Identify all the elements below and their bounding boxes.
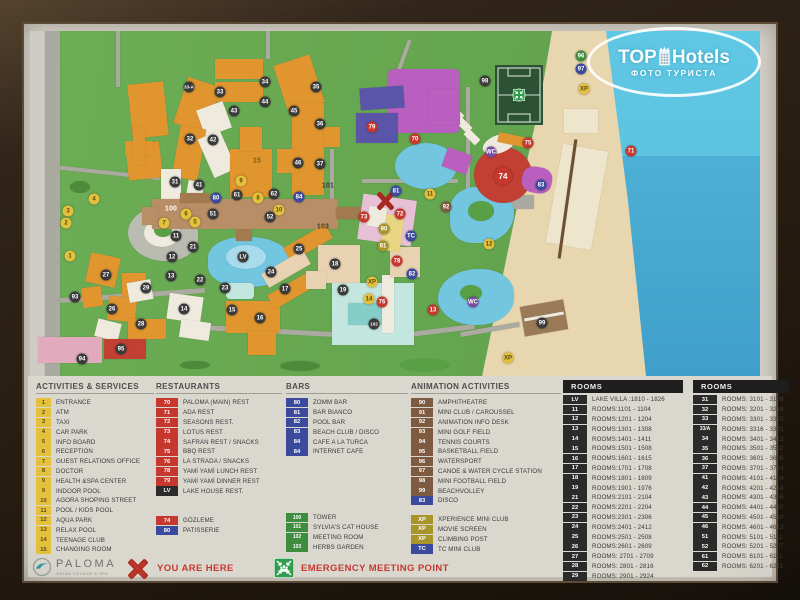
legend-badge: 16 <box>563 454 587 463</box>
legend-badge: 11 <box>36 506 51 515</box>
brand-subtitle: GRIDA VILLAGE & SPA <box>56 571 116 576</box>
legend-row: 98MINI FOOTBALL FIELD <box>411 476 561 486</box>
legend-badge: 18 <box>563 474 587 483</box>
legend-badge: 33 <box>693 415 717 424</box>
legend-row: 7GUEST RELATIONS OFFICE <box>36 457 154 467</box>
map-shape <box>128 319 166 339</box>
map-marker-96: 96 <box>576 51 587 62</box>
legend-row: 3TAXI <box>36 418 154 428</box>
legend-label: ROOMS:1801 - 1809 <box>592 475 652 482</box>
legend-row: 84INTERNET CAFE <box>286 447 408 457</box>
legend-row: 19ROOMS:1901 - 1976 <box>563 483 689 493</box>
map-marker-XP: XP <box>367 277 378 288</box>
map-marker-81: 81 <box>391 186 402 197</box>
map-marker-61: 61 <box>232 190 243 201</box>
map-marker-70: 70 <box>410 134 421 145</box>
map-marker-84: 84 <box>294 192 305 203</box>
legend-badge: 44 <box>693 503 717 512</box>
legend-label: WATERSPORT <box>438 458 482 465</box>
legend-label: HERBS GARDEN <box>313 544 364 551</box>
map-marker-4: 4 <box>89 194 100 205</box>
legend-label: MINI GOLF FIELD <box>438 429 490 436</box>
legend-label: ROOMS: 3301 - 3315 <box>722 416 784 423</box>
map-shape <box>266 31 270 59</box>
legend-label: SEASONS REST. <box>183 419 233 426</box>
tophotels-watermark: TOP Hotels ФОТО ТУРИСТА <box>586 27 762 97</box>
legend-label: GÖZLEME <box>183 517 214 524</box>
legend-badge: 13 <box>36 526 51 535</box>
watermark-hotels-text: Hotels <box>672 50 730 66</box>
map-marker-25: 25 <box>294 244 305 255</box>
map-marker-42: 42 <box>208 135 219 146</box>
legend-badge: 101 <box>286 523 308 532</box>
map-marker-19: 19 <box>338 285 349 296</box>
map-marker-5: 5 <box>190 217 201 228</box>
legend-badge: 74 <box>156 437 178 446</box>
sign-footer: PALOMA GRIDA VILLAGE & SPA YOU ARE HERE <box>24 555 584 583</box>
paloma-swirl-icon <box>32 557 52 577</box>
map-marker-83: 83 <box>536 180 547 191</box>
map-marker-35: 35 <box>311 82 322 93</box>
map-marker-17: 17 <box>280 284 291 295</box>
legend-row: 80PATISSERIE <box>156 526 282 536</box>
legend-row: 44ROOMS: 4401 - 4410 <box>693 503 793 513</box>
map-marker-26: 26 <box>107 304 118 315</box>
map-marker-18: 18 <box>330 259 341 270</box>
map-marker-WC: WC <box>486 147 497 158</box>
legend-row: 33/AROOMS: 3316 - 3341 <box>693 424 793 434</box>
legend-row: 83BEACH CLUB / DISCO <box>286 427 408 437</box>
map-marker-79: 79 <box>367 122 378 133</box>
map-marker-93: 93 <box>70 292 81 303</box>
map-shape <box>306 271 326 289</box>
legend-row: XPXPERIENCE MINI CLUB <box>411 515 561 525</box>
map-marker-22: 22 <box>195 275 206 286</box>
legend-label: MEETING ROOM <box>313 534 363 541</box>
legend-badge: XP <box>411 535 433 544</box>
legend-badge: 43 <box>693 493 717 502</box>
map-marker-44: 44 <box>260 97 271 108</box>
hotel-building-icon <box>658 46 671 66</box>
legend-row: 22ROOMS:2201 - 2204 <box>563 503 689 513</box>
map-marker-32: 32 <box>185 134 196 145</box>
map-shape <box>324 127 340 147</box>
legend-badge: 62 <box>693 562 717 571</box>
legend-label: INFO BOARD <box>56 439 96 446</box>
legend-row: 32ROOMS: 3201 - 3214 <box>693 405 793 415</box>
legend-row: 6RECEPTION <box>36 447 154 457</box>
map-shape <box>292 103 324 195</box>
legend-row: 92ANIMATION INFO DESK <box>411 418 561 428</box>
legend-row: 13RELAX POOL <box>36 525 154 535</box>
legend-label: ROOMS: 4201 - 4214 <box>722 485 784 492</box>
legend-label: ROOMS:2501 - 2508 <box>592 534 652 541</box>
map-shape <box>142 207 158 225</box>
legend-title-animation: ANIMATION ACTIVITIES <box>411 382 561 394</box>
map-marker-7: 7 <box>159 218 170 229</box>
legend-row: 34ROOMS: 3401 - 3412 <box>693 434 793 444</box>
legend-label: INTERNET CAFE <box>313 448 363 455</box>
map-marker-33-A: 33-A <box>184 82 195 93</box>
you-are-here-label: YOU ARE HERE <box>157 563 234 574</box>
legend-label: XPERIENCE MINI CLUB <box>438 516 509 523</box>
map-marker-34: 34 <box>260 77 271 88</box>
legend-badge: 82 <box>286 418 308 427</box>
legend-badge: 8 <box>36 467 51 476</box>
legend-badge: 6 <box>36 447 51 456</box>
map-shape <box>248 331 276 355</box>
legend-row: TCTC MINI CLUB <box>411 544 561 554</box>
legend-label: ROOMS:2101 - 2104 <box>592 494 652 501</box>
legend-label: AGORA SHOPING STREET <box>56 497 136 504</box>
legend-badge: 24 <box>563 523 587 532</box>
legend-badge: 70 <box>156 398 178 407</box>
emergency-meeting-point-legend: EMERGENCY MEETING POINT <box>274 558 449 578</box>
legend-badge: 25 <box>563 532 587 541</box>
legend-row: 4CAR PARK <box>36 427 154 437</box>
legend-badge: 26 <box>563 542 587 551</box>
legend-label: ROOMS:1901 - 1976 <box>592 485 652 492</box>
legend-label: ROOMS:2401 - 2412 <box>592 524 652 531</box>
legend-row: XPMOVIE SCREEN <box>411 525 561 535</box>
map-shape <box>468 201 494 221</box>
legend-label: SAFRAN REST / SNACKS <box>183 439 259 446</box>
legend-row: 41ROOMS: 4101 - 4104 <box>693 473 793 483</box>
map-shape <box>359 85 404 110</box>
map-marker-9: 9 <box>236 176 247 187</box>
legend-badge: 2 <box>36 408 51 417</box>
legend-row: 23ROOMS:2301 - 2306 <box>563 513 689 523</box>
legend-badge: 37 <box>693 464 717 473</box>
legend-row: 75BBQ REST <box>156 447 282 457</box>
legend-badge: 12 <box>36 516 51 525</box>
legend-row: 25ROOMS:2501 - 2508 <box>563 532 689 542</box>
legend-badge: 80 <box>286 398 308 407</box>
map-shape <box>180 361 210 369</box>
legend-title-rooms-1: ROOMS <box>563 380 683 393</box>
map-shape <box>564 109 598 133</box>
legend-badge: 97 <box>411 467 433 476</box>
legend-label: ROOMS:1501 - 1508 <box>592 445 652 452</box>
sign-board: 12349327292628949533-A333444354345363242… <box>24 24 776 581</box>
legend-row: 10AGORA SHOPING STREET <box>36 496 154 506</box>
map-marker-14: 14 <box>179 304 190 315</box>
map-label-103: 103 <box>317 224 329 231</box>
legend-row: 18ROOMS:1801 - 1809 <box>563 473 689 483</box>
legend-badge: 1 <box>36 398 51 407</box>
legend-badge: 14 <box>563 434 587 443</box>
legend-badge: 3 <box>36 418 51 427</box>
map-marker-45: 45 <box>289 106 300 117</box>
legend-label: ROOMS:1701 - 1708 <box>592 465 652 472</box>
legend-badge: TC <box>411 544 433 553</box>
legend-row: 46ROOMS: 4601 - 4613 <box>693 522 793 532</box>
legend-row: 11ROOMS:1101 - 1104 <box>563 405 689 415</box>
legend-badge: 9 <box>36 486 51 495</box>
map-label-100: 100 <box>165 206 177 213</box>
legend-badge: 84 <box>286 437 308 446</box>
map-shape <box>81 286 104 309</box>
map-shape <box>215 59 263 79</box>
legend-badge: 83 <box>286 428 308 437</box>
legend-badge: 46 <box>693 523 717 532</box>
legend-label: CANOE & WATER CYCLE STATION <box>438 468 542 475</box>
legend-title-rooms-2: ROOMS <box>693 380 789 393</box>
legend-badge: 45 <box>693 513 717 522</box>
legend-badge: 79 <box>156 477 178 486</box>
legend-badge: 95 <box>411 447 433 456</box>
legend-row: 1ENTRANCE <box>36 398 154 408</box>
legend-rooms-1: ROOMS LVLAKE VILLA :1810 - 182611ROOMS:1… <box>563 380 689 581</box>
legend-bars: BARS 80ZOMM BAR81BAR BIANCO82POOL BAR83B… <box>286 382 408 552</box>
legend-label: TAXI <box>56 419 70 426</box>
legend-badge: XP <box>411 515 433 524</box>
legend-badge: 23 <box>563 513 587 522</box>
legend-label: POOL / KIDS POOL <box>56 507 113 514</box>
legend-label: LA STRADA / SNACKS <box>183 458 249 465</box>
legend-label: BBQ REST <box>183 448 215 455</box>
legend-row: 74GÖZLEME <box>156 516 282 526</box>
map-shape <box>240 127 262 151</box>
legend-badge: 22 <box>563 503 587 512</box>
legend-label: CLIMBING POST <box>438 536 488 543</box>
map-marker-24: 24 <box>266 267 277 278</box>
legend-label: PALOMA (MAIN) REST <box>183 399 249 406</box>
legend-label: LAKE VILLA :1810 - 1826 <box>592 396 665 403</box>
legend-label: CAFE A LA TURCA <box>313 439 368 446</box>
legend-badge: 7 <box>36 457 51 466</box>
legend-badge: 81 <box>286 408 308 417</box>
legend-badge: 76 <box>156 457 178 466</box>
legend-row: 94TENNIS COURTS <box>411 437 561 447</box>
map-marker-3: 3 <box>63 206 74 217</box>
legend-row: 17ROOMS:1701 - 1708 <box>563 464 689 474</box>
emergency-meeting-point-icon <box>513 89 525 101</box>
legend-badge: 52 <box>693 542 717 551</box>
legend-row: 12ROOMS:1201 - 1204 <box>563 415 689 425</box>
legend-row: LVLAKE VILLA :1810 - 1826 <box>563 395 689 405</box>
legend-badge: 33/A <box>693 425 717 434</box>
map-marker-91: 91 <box>378 241 389 252</box>
legend-label: LAKE HOUSE REST. <box>183 488 243 495</box>
map-marker-75: 75 <box>523 138 534 149</box>
legend-row: 43ROOMS: 4301 - 4306 <box>693 493 793 503</box>
legend-label: DOCTOR <box>56 468 83 475</box>
map-marker-97: 97 <box>576 64 587 75</box>
you-are-here-legend: YOU ARE HERE <box>124 558 234 579</box>
legend-row: 45ROOMS: 4501 - 4510 <box>693 513 793 523</box>
legend-label: ROOMS: 3401 - 3412 <box>722 436 784 443</box>
legend-row: 76LA STRADA / SNACKS <box>156 457 282 467</box>
map-marker-94: 94 <box>77 354 88 365</box>
legend-label: ROOMS:1401 - 1411 <box>592 436 651 443</box>
legend-badge: 94 <box>411 437 433 446</box>
map-marker-73: 73 <box>359 212 370 223</box>
legend-row: 80ZOMM BAR <box>286 398 408 408</box>
legend-label: ROOMS: 5101 - 5111 <box>722 534 783 541</box>
legend-badge: 42 <box>693 483 717 492</box>
legend-label: INDOOR POOL <box>56 488 101 495</box>
legend-label: MINI CLUB / CAROUSSEL <box>438 409 515 416</box>
legend-label: BEACHVOLLEY <box>438 488 485 495</box>
legend-label: ROOMS: 3601 - 3608 <box>722 455 784 462</box>
legend-badge: 74 <box>156 516 178 525</box>
emergency-meeting-point-icon <box>274 558 294 578</box>
emergency-meeting-point-label: EMERGENCY MEETING POINT <box>301 563 449 574</box>
legend-badge: 93 <box>411 428 433 437</box>
legend-label: ZOMM BAR <box>313 399 347 406</box>
legend-label: ROOMS:2301 - 2306 <box>592 514 652 521</box>
legend-row: 26ROOMS:2601 - 2609 <box>563 542 689 552</box>
legend-badge: 19 <box>563 483 587 492</box>
legend-activities: ACTIVITIES & SERVICES 1ENTRANCE2ATM3TAXI… <box>36 382 154 555</box>
legend-label: BAR BIANCO <box>313 409 352 416</box>
legend-badge: 83 <box>411 496 433 505</box>
legend-label: YAMİ YAMİ LUNCH REST <box>183 468 257 475</box>
legend-label: ROOMS:2201 - 2204 <box>592 504 652 511</box>
legend-row: 8DOCTOR <box>36 467 154 477</box>
map-marker-27: 27 <box>101 270 112 281</box>
watermark-subtitle: ФОТО ТУРИСТА <box>631 68 717 78</box>
legend-row: 37ROOMS: 3701 - 3714 <box>693 464 793 474</box>
legend-row: 61ROOMS: 6101 - 6111 <box>693 552 793 562</box>
legend-row: 9INDOOR POOL <box>36 486 154 496</box>
legend-row: 51ROOMS: 5101 - 5111 <box>693 532 793 542</box>
legend-row: 24ROOMS:2401 - 2412 <box>563 522 689 532</box>
legend-badge: 61 <box>693 552 717 561</box>
map-shape <box>116 31 120 87</box>
map-marker-62: 62 <box>269 189 280 200</box>
legend-badge: XP <box>411 525 433 534</box>
legend-label: AMPHITHEATRE <box>438 399 487 406</box>
map-marker-52: 52 <box>265 212 276 223</box>
legend-animation: ANIMATION ACTIVITIES 90AMPHITHEATRE91MIN… <box>411 382 561 554</box>
map-marker-XP: XP <box>503 353 514 364</box>
legend-label: AQUA PARK <box>56 517 92 524</box>
map-marker-10: 10 <box>274 205 285 216</box>
map-marker-90: 90 <box>379 224 390 235</box>
legend-row: 81BAR BIANCO <box>286 408 408 418</box>
legend-badge: 103 <box>286 542 308 551</box>
legend-row: 5INFO BOARD <box>36 437 154 447</box>
legend-badge: 71 <box>156 408 178 417</box>
legend-label: ROOMS:1201 - 1204 <box>592 416 652 423</box>
legend-label: ADA REST <box>183 409 214 416</box>
map-marker-28: 28 <box>136 319 147 330</box>
legend-row: 71ADA REST <box>156 408 282 418</box>
legend-badge: 21 <box>563 493 587 502</box>
legend-label: POOL BAR <box>313 419 345 426</box>
legend-row: 35ROOMS: 3501 - 3512 <box>693 444 793 454</box>
legend-rooms-2: ROOMS 31ROOMS: 3101 - 310832ROOMS: 3201 … <box>693 380 793 571</box>
legend-badge: LV <box>563 395 587 404</box>
map-shape <box>30 31 45 376</box>
legend-badge: 10 <box>36 496 51 505</box>
legend-title-activities: ACTIVITIES & SERVICES <box>36 382 154 394</box>
legend-row: 93MINI GOLF FIELD <box>411 427 561 437</box>
map-marker-37: 37 <box>315 159 326 170</box>
legend-badge: 72 <box>156 418 178 427</box>
map-marker-11: 11 <box>171 231 182 242</box>
map-marker-33: 33 <box>215 87 226 98</box>
legend-badge: 51 <box>693 532 717 541</box>
legend-label: BEACH CLUB / DISCO <box>313 429 379 436</box>
map-shape <box>38 337 102 363</box>
legend-badge: 92 <box>411 418 433 427</box>
legend-row: 82POOL BAR <box>286 418 408 428</box>
legend-label: ROOMS: 2801 - 2816 <box>592 563 654 570</box>
map-shape <box>466 87 470 199</box>
legend-badge: 31 <box>693 395 717 404</box>
legend-row: 62ROOMS: 6201 - 6211 <box>693 562 793 572</box>
map-marker-95: 95 <box>116 344 127 355</box>
legend-row: 12AQUA PARK <box>36 516 154 526</box>
legend-row: 2ATM <box>36 408 154 418</box>
map-marker-21: 21 <box>188 242 199 253</box>
legend-badge: 17 <box>563 464 587 473</box>
legend-badge: 9 <box>36 477 51 486</box>
legend-label: LOTUS REST <box>183 429 223 436</box>
legend-badge: 100 <box>286 513 308 522</box>
legend-badge: 4 <box>36 428 51 437</box>
legend-badge: 15 <box>563 444 587 453</box>
map-shape <box>45 31 60 376</box>
legend-badge: 35 <box>693 444 717 453</box>
map-marker-2: 2 <box>61 218 72 229</box>
legend-label: DISCO <box>438 497 458 504</box>
legend-badge: 32 <box>693 405 717 414</box>
map-marker-46: 46 <box>293 158 304 169</box>
red-x-icon <box>124 558 150 579</box>
legend-label: ROOMS: 4401 - 4410 <box>722 504 784 511</box>
legend-label: HEALTH &SPA CENTER <box>56 478 126 485</box>
legend-label: RECEPTION <box>56 448 93 455</box>
map-marker-74: 74 <box>494 167 512 185</box>
legend-row: 33ROOMS: 3301 - 3315 <box>693 415 793 425</box>
map-marker-82: 82 <box>407 269 418 280</box>
map-shape <box>180 193 210 203</box>
legend-badge: 98 <box>411 477 433 486</box>
legend-label: ATM <box>56 409 69 416</box>
legend-title-restaurants: RESTAURANTS <box>156 382 282 394</box>
legend-label: TOWER <box>313 514 336 521</box>
legend-label: ANIMATION INFO DESK <box>438 419 509 426</box>
map-marker-98: 98 <box>480 76 491 87</box>
legend-label: RELAX POOL <box>56 527 96 534</box>
map-marker-WC: WC <box>468 297 479 308</box>
legend-label: ROOMS: 6101 - 6111 <box>722 553 783 560</box>
legend-label: ROOMS: 4501 - 4510 <box>722 514 784 521</box>
legend-badge: 102 <box>286 533 308 542</box>
legend-row: 90AMPHITHEATRE <box>411 398 561 408</box>
map-marker-TC: TC <box>406 231 417 242</box>
legend-badge: 12 <box>563 415 587 424</box>
legend-label: ROOMS: 3701 - 3714 <box>722 465 784 472</box>
legend-row: 102MEETING ROOM <box>286 532 408 542</box>
legend-row: 91MINI CLUB / CAROUSSEL <box>411 408 561 418</box>
map-shape <box>236 229 252 241</box>
map-marker-8: 8 <box>253 193 264 204</box>
legend-row: 97CANOE & WATER CYCLE STATION <box>411 467 561 477</box>
legend-row: 16ROOMS:1601 - 1615 <box>563 454 689 464</box>
legend-label: ROOMS: 3201 - 3214 <box>722 406 784 413</box>
legend-label: ROOMS: 4601 - 4613 <box>722 524 784 531</box>
legend-label: TC MINI CLUB <box>438 546 480 553</box>
legend-label: MINI FOOTBALL FIELD <box>438 478 506 485</box>
map-marker-78: 78 <box>392 256 403 267</box>
legend-label: ROOMS:2601 - 2609 <box>592 543 652 550</box>
legend-row: 14TEENAGE CLUB <box>36 535 154 545</box>
